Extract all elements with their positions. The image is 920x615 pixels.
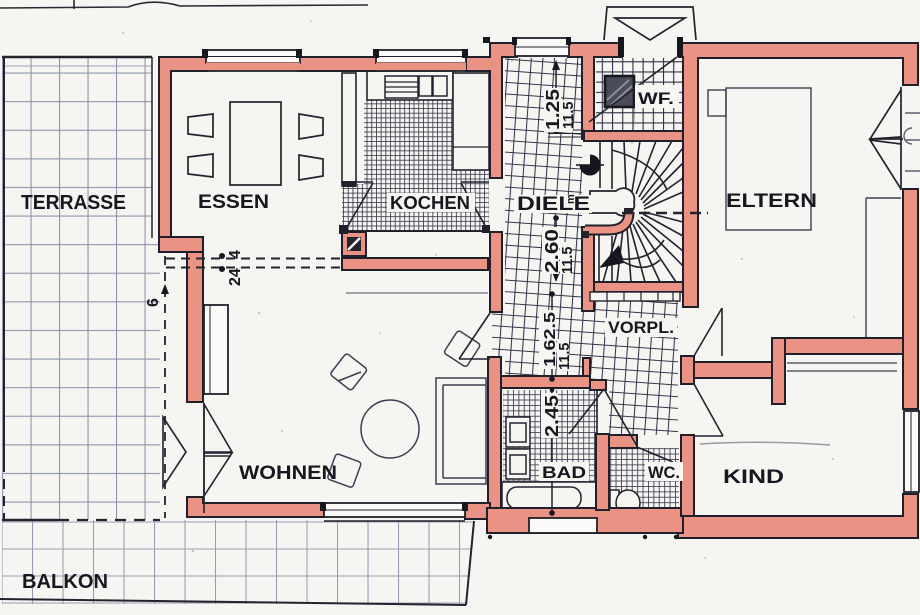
svg-text:2.60: 2.60 <box>542 229 562 273</box>
svg-text:TERRASSE: TERRASSE <box>21 192 126 214</box>
svg-text:24: 24 <box>227 268 244 286</box>
svg-text:11.5: 11.5 <box>561 102 577 129</box>
svg-text:ELTERN: ELTERN <box>726 191 817 212</box>
svg-text:WC.: WC. <box>648 463 680 482</box>
svg-text:11.5: 11.5 <box>560 247 576 274</box>
svg-text:VORPL.: VORPL. <box>608 318 674 337</box>
svg-text:2.45: 2.45 <box>542 395 562 437</box>
svg-text:KOCHEN: KOCHEN <box>390 193 470 213</box>
svg-text:4: 4 <box>227 250 244 259</box>
svg-text:WF.: WF. <box>638 89 674 108</box>
svg-text:m: m <box>565 194 577 204</box>
svg-text:WOHNEN: WOHNEN <box>239 463 337 484</box>
svg-text:BALKON: BALKON <box>22 571 108 593</box>
svg-text:6: 6 <box>145 298 162 307</box>
svg-text:BAD: BAD <box>542 463 586 482</box>
svg-text:DIELE: DIELE <box>517 194 590 215</box>
svg-text:ESSEN: ESSEN <box>198 192 269 213</box>
svg-text:KIND: KIND <box>723 467 784 488</box>
svg-text:11.5: 11.5 <box>557 343 573 370</box>
svg-text:1.25: 1.25 <box>543 89 563 130</box>
